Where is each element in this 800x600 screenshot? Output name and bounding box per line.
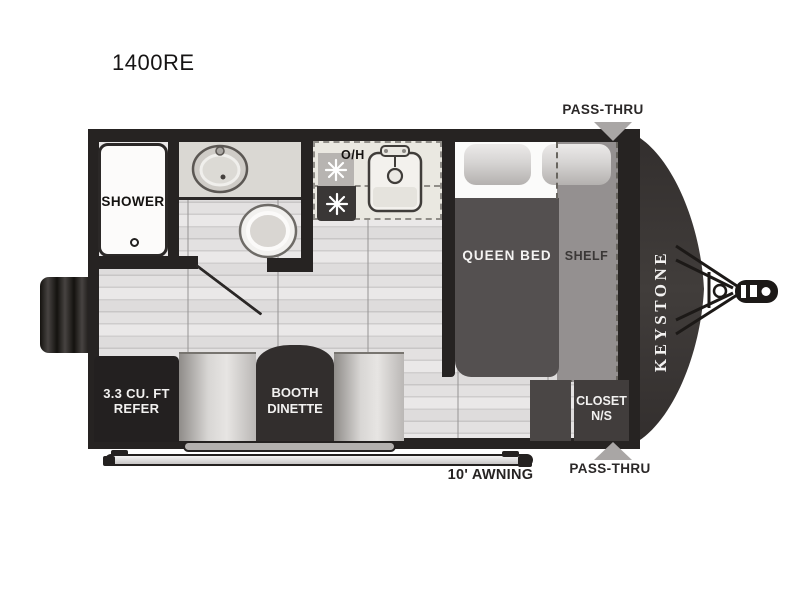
booth-dinette-table: BOOTH DINETTE — [256, 345, 334, 441]
brand-logo-text: KEYSTONE — [651, 221, 673, 401]
bathroom-wall — [301, 129, 313, 272]
booth-seat — [179, 352, 256, 441]
bedroom-partition-wall — [442, 129, 455, 377]
kitchen-sink-icon — [363, 143, 427, 217]
awning-roller — [105, 454, 533, 466]
awning-bracket — [111, 450, 128, 456]
nightstand-cabinet — [530, 380, 571, 441]
closet: CLOSET N/S — [574, 380, 629, 441]
shower-label: SHOWER — [101, 194, 165, 209]
burner-icon — [325, 192, 349, 216]
pillow — [542, 144, 611, 185]
awning-label: 10' AWNING — [428, 467, 553, 483]
booth-seat — [334, 352, 404, 441]
safety-chain-ring-icon — [714, 285, 726, 297]
pass-thru-label-top: PASS-THRU — [543, 102, 663, 117]
rear-bumper — [40, 277, 93, 353]
queen-bed: QUEEN BED — [455, 198, 559, 377]
shower-stall: SHOWER — [98, 143, 168, 257]
pass-thru-label-bottom: PASS-THRU — [550, 461, 670, 476]
awning-bracket — [502, 451, 519, 457]
shelf-label: SHELF — [557, 249, 616, 263]
bathroom-partition-wall — [168, 129, 179, 258]
shower-drain-icon — [130, 238, 139, 247]
shelf-boundary-dashed-line — [556, 142, 558, 199]
model-title: 1400RE — [112, 50, 195, 76]
closet-label-line2: N/S — [574, 409, 629, 424]
dinette-label-line1: BOOTH — [272, 385, 319, 400]
cooktop-burner — [317, 186, 356, 221]
pass-thru-arrow-icon — [594, 122, 632, 141]
toilet-icon — [238, 203, 300, 260]
bathroom-wall — [88, 256, 198, 269]
refrigerator: 3.3 CU. FT REFER — [94, 356, 179, 442]
floorplan-diagram: KEYSTONE QUEEN BED SHELF SHOWER — [0, 0, 800, 600]
coupler-icon — [735, 280, 778, 303]
closet-label-line1: CLOSET — [576, 394, 627, 408]
refrigerator-label-line1: 3.3 CU. FT — [103, 386, 170, 401]
dinette-label-line2: DINETTE — [256, 401, 334, 417]
awning-arm — [183, 441, 396, 452]
refrigerator-label-line2: REFER — [94, 401, 179, 416]
overhead-cabinet-label: O/H — [341, 148, 365, 162]
awning-end-cap — [518, 456, 532, 467]
pass-thru-arrow-icon — [594, 442, 632, 460]
queen-bed-label: QUEEN BED — [462, 248, 551, 263]
awning-end-cap — [103, 456, 115, 466]
pillow — [464, 144, 531, 185]
bathroom-sink-icon — [188, 142, 252, 198]
